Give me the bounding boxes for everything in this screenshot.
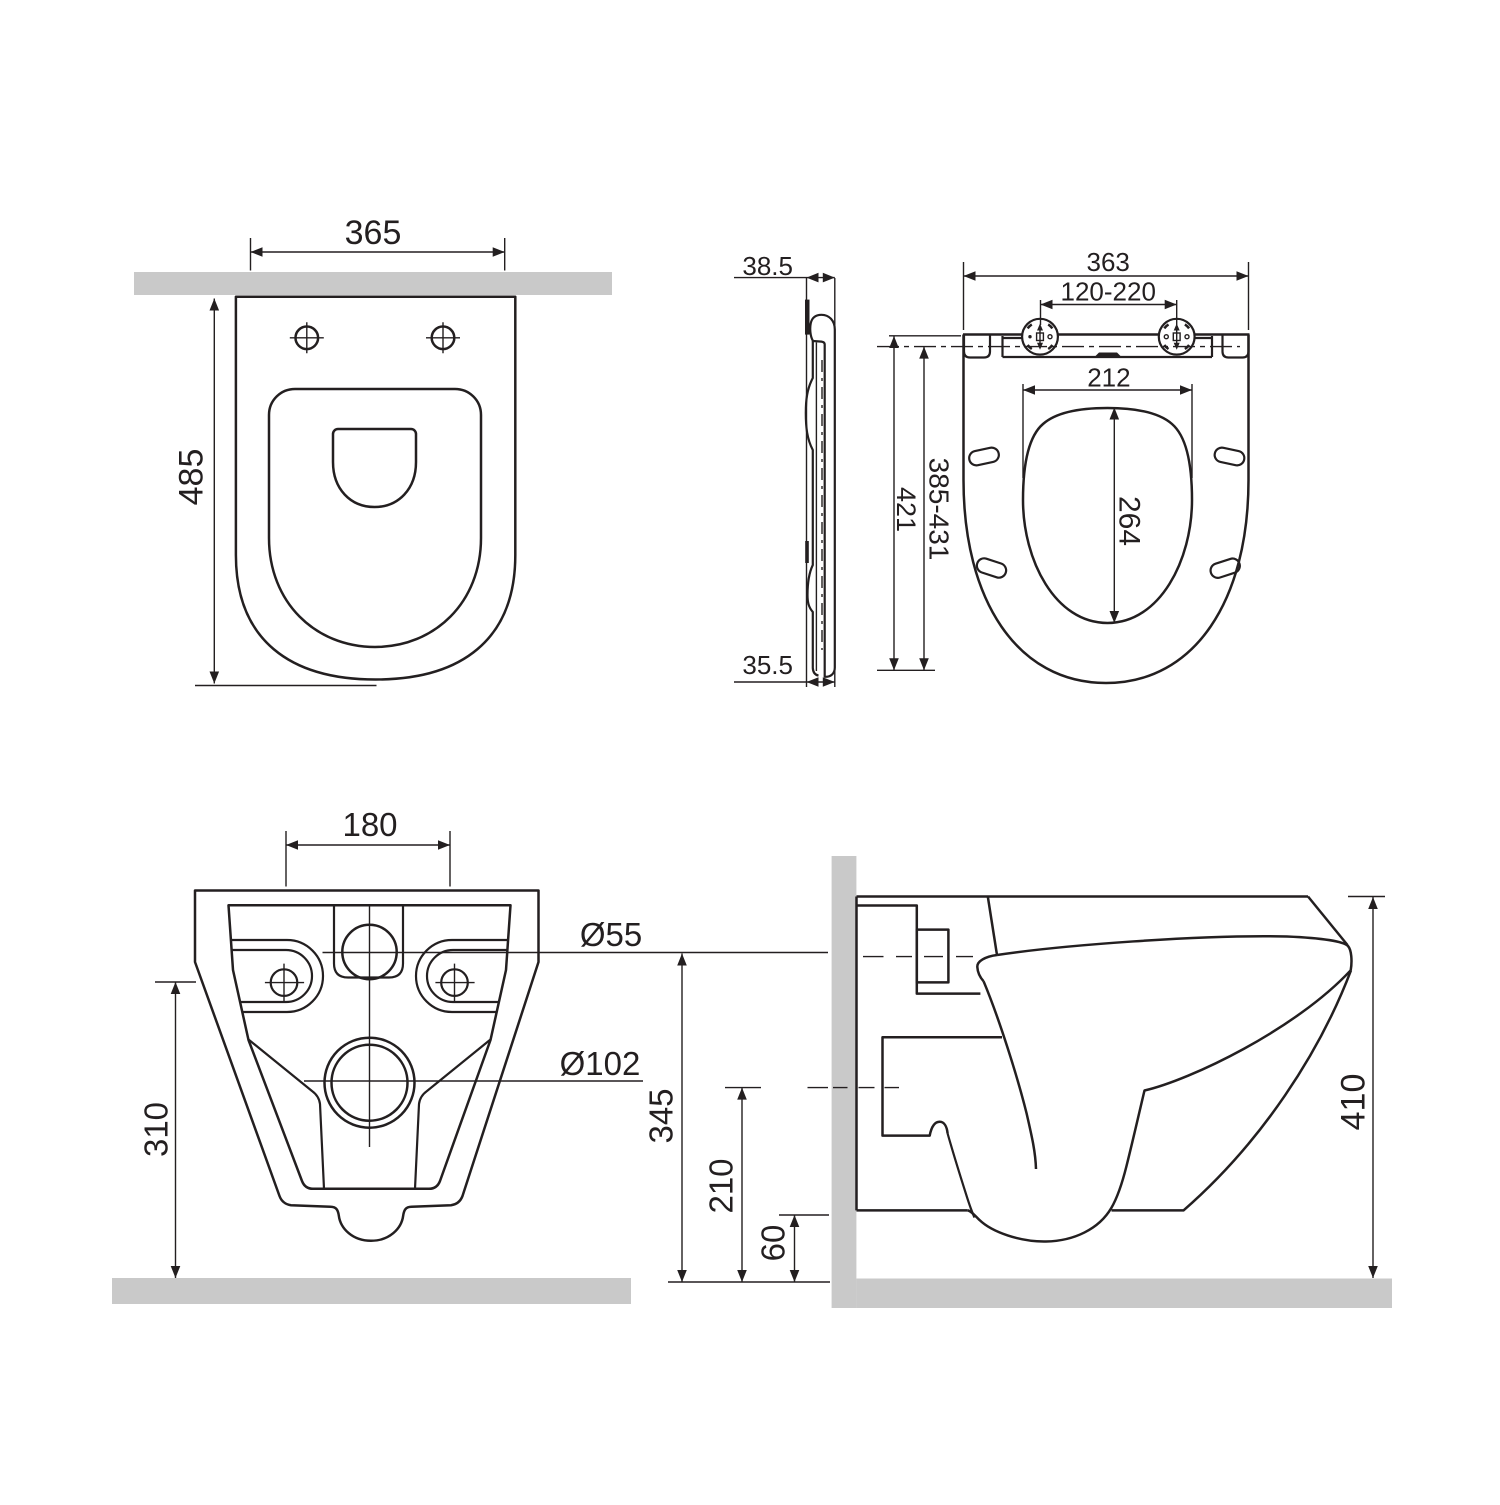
svg-text:60: 60	[755, 1225, 792, 1262]
svg-text:Ø55: Ø55	[580, 916, 642, 953]
svg-text:180: 180	[342, 806, 397, 843]
svg-text:Ø102: Ø102	[560, 1045, 641, 1082]
svg-text:35.5: 35.5	[742, 650, 793, 680]
svg-text:264: 264	[1113, 496, 1146, 546]
svg-text:363: 363	[1087, 247, 1130, 277]
svg-text:385-431: 385-431	[923, 458, 954, 561]
svg-text:421: 421	[891, 487, 921, 532]
svg-text:410: 410	[1334, 1074, 1372, 1131]
svg-text:485: 485	[173, 449, 211, 506]
svg-text:120-220: 120-220	[1060, 277, 1155, 307]
svg-text:212: 212	[1087, 363, 1130, 393]
svg-text:210: 210	[703, 1158, 740, 1213]
svg-text:38.5: 38.5	[742, 251, 793, 281]
svg-text:345: 345	[643, 1088, 680, 1143]
svg-text:310: 310	[138, 1102, 175, 1157]
svg-text:365: 365	[345, 214, 402, 252]
